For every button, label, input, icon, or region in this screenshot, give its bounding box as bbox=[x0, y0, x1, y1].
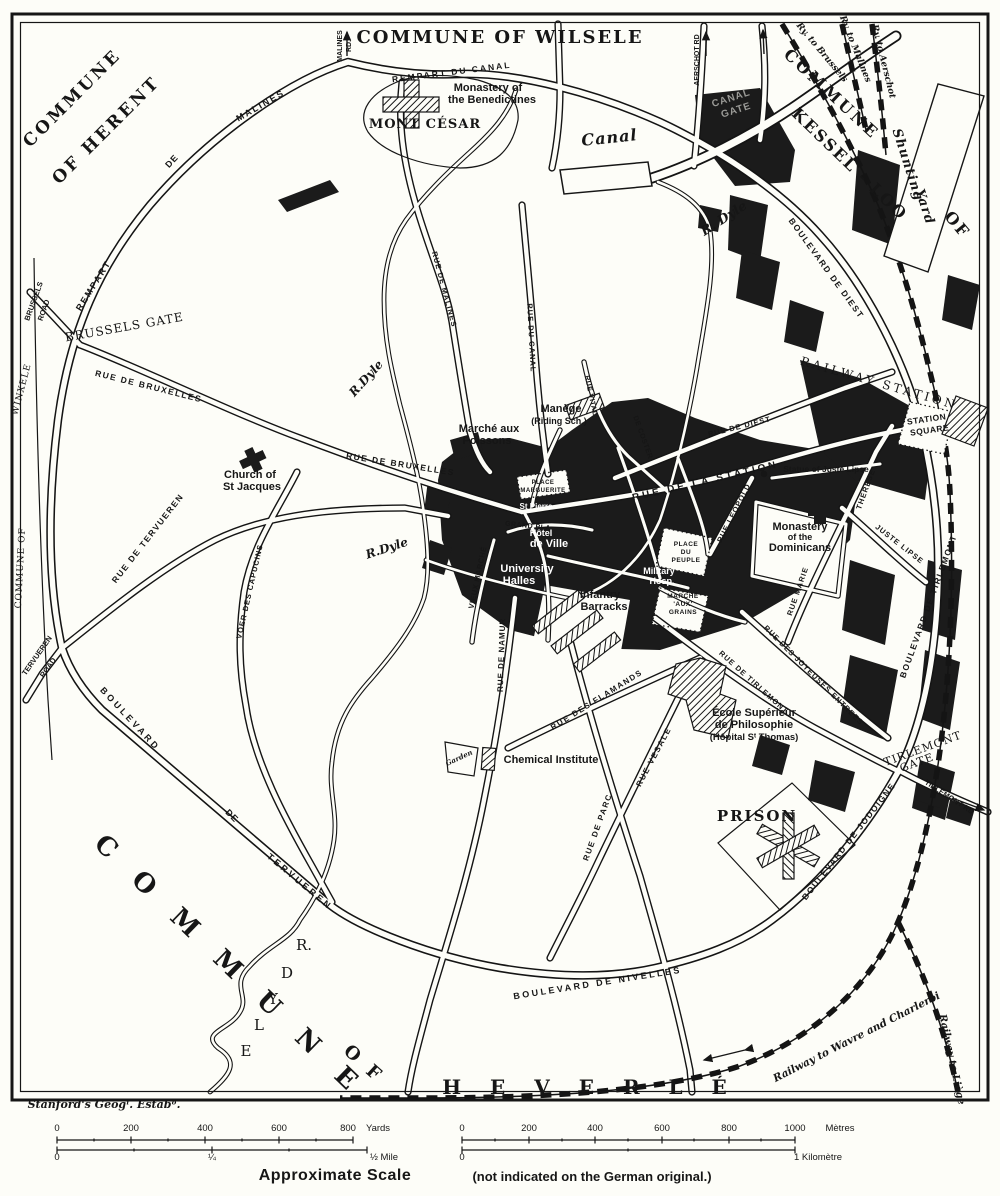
map-label-200: 200 bbox=[123, 1123, 139, 1134]
map-label-yards: Yards bbox=[366, 1123, 390, 1134]
map-page: COMMUNEOF HERENTCOMMUNE OF WILSELECOMMUN… bbox=[0, 0, 1000, 1196]
map-label-h-pital-s-thomas: (Hôpital Sᵗ Thomas) bbox=[710, 732, 799, 743]
map-label-place: PLACE bbox=[532, 480, 555, 486]
map-label-l: L bbox=[254, 1016, 264, 1034]
map-label-malines: MALINES bbox=[337, 30, 344, 62]
map-label-commune-of-wilsele: COMMUNE OF WILSELE bbox=[356, 27, 643, 48]
louvain-map: COMMUNEOF HERENTCOMMUNE OF WILSELECOMMUN… bbox=[0, 0, 1000, 1196]
map-label-halles: Halles bbox=[503, 575, 535, 587]
map-label-st-jacques: St Jacques bbox=[223, 481, 281, 493]
map-label-r: R. bbox=[296, 936, 312, 954]
map-label-chemical-institute: Chemical Institute bbox=[504, 754, 599, 766]
map-label-0: 0 bbox=[459, 1152, 464, 1163]
map-label-h-e-v-e-r-l: H E V E R L É bbox=[442, 1075, 738, 1099]
map-label-stanford-s-geog-estab: Stanford's Geogˡ. Estabᵒ. bbox=[28, 1098, 181, 1111]
map-label-rd: RD. bbox=[346, 40, 353, 52]
map-label-0: 0 bbox=[459, 1123, 464, 1134]
map-label-poissons: Poissons bbox=[463, 435, 512, 447]
map-label-st-pierre: St Pierre bbox=[520, 502, 553, 511]
map-label-d: D bbox=[281, 964, 293, 982]
map-label-infantry: Infantry bbox=[580, 589, 621, 601]
map-label-200: 200 bbox=[521, 1123, 537, 1134]
map-label-600: 600 bbox=[271, 1123, 287, 1134]
map-label-peuple: PEUPLE bbox=[671, 557, 700, 564]
map-label-statue-of-juste-lipse: Statue of Juste Lipse bbox=[783, 464, 869, 474]
map-label-march-aux: Marché aux bbox=[459, 423, 520, 435]
map-label-grains: GRAINS bbox=[669, 609, 697, 616]
direction-arrow bbox=[763, 30, 764, 54]
map-label-400: 400 bbox=[197, 1123, 213, 1134]
map-label-church-of: Church of bbox=[224, 469, 276, 481]
map-label-aerschot-rd: AERSCHOT RD bbox=[694, 34, 701, 85]
map-label-university: University bbox=[500, 563, 554, 575]
map-label-800: 800 bbox=[721, 1123, 737, 1134]
map-label-m-tres: Mètres bbox=[825, 1123, 854, 1134]
map-label-0: 0 bbox=[54, 1152, 59, 1163]
map-label-monastery-of: Monastery of bbox=[454, 82, 523, 94]
map-label-0: 0 bbox=[54, 1123, 59, 1134]
map-label-du: DU bbox=[681, 549, 691, 556]
chemical-institute-building bbox=[481, 748, 496, 771]
map-label-mile: ½ Mile bbox=[370, 1152, 398, 1163]
map-label-dominicans: Dominicans bbox=[769, 542, 831, 554]
map-label-y: Y bbox=[267, 990, 279, 1008]
map-label-de-philosophie: de Philosophie bbox=[715, 719, 793, 731]
map-label-e: E bbox=[241, 1042, 252, 1060]
map-label-riding-sch: (Riding Sch.) bbox=[531, 416, 587, 426]
map-label-aux: 'AUX' bbox=[673, 601, 692, 608]
map-label-not-indicated-on-the-german-original: (not indicated on the German original.) bbox=[472, 1169, 711, 1184]
map-label-marguerite: MARGUERITE bbox=[520, 488, 565, 494]
map-label-approximate-scale: Approximate Scale bbox=[259, 1167, 412, 1184]
map-label-600: 600 bbox=[654, 1123, 670, 1134]
map-label-cole-sup-rieur: École Supérieur bbox=[712, 706, 796, 719]
map-label-h-tel: Hôtel bbox=[530, 528, 553, 538]
map-label-800: 800 bbox=[340, 1123, 356, 1134]
map-label-label-120: ¼ bbox=[208, 1152, 217, 1163]
map-label-400: 400 bbox=[587, 1123, 603, 1134]
map-label-barracks: Barracks bbox=[580, 601, 627, 613]
map-label-1-kilom-tre: 1 Kilomètre bbox=[794, 1152, 842, 1163]
map-label-place: PLACE bbox=[674, 541, 699, 548]
map-label-military: Military bbox=[643, 566, 675, 576]
map-label-mont-c-sar: MONT CÉSAR bbox=[369, 116, 481, 132]
map-label-man-ge: Manège bbox=[541, 403, 582, 415]
map-label-the-benedictines: the Benedictines bbox=[448, 94, 536, 106]
map-label-de-ville: de Ville bbox=[530, 538, 568, 550]
map-label-of-the: of the bbox=[788, 532, 813, 542]
map-label-1000: 1000 bbox=[784, 1123, 805, 1134]
map-label-march: MARCHÉ bbox=[667, 591, 699, 600]
map-label-hosp: Hosp. bbox=[649, 576, 674, 586]
map-label-prison: PRISON bbox=[717, 807, 797, 825]
